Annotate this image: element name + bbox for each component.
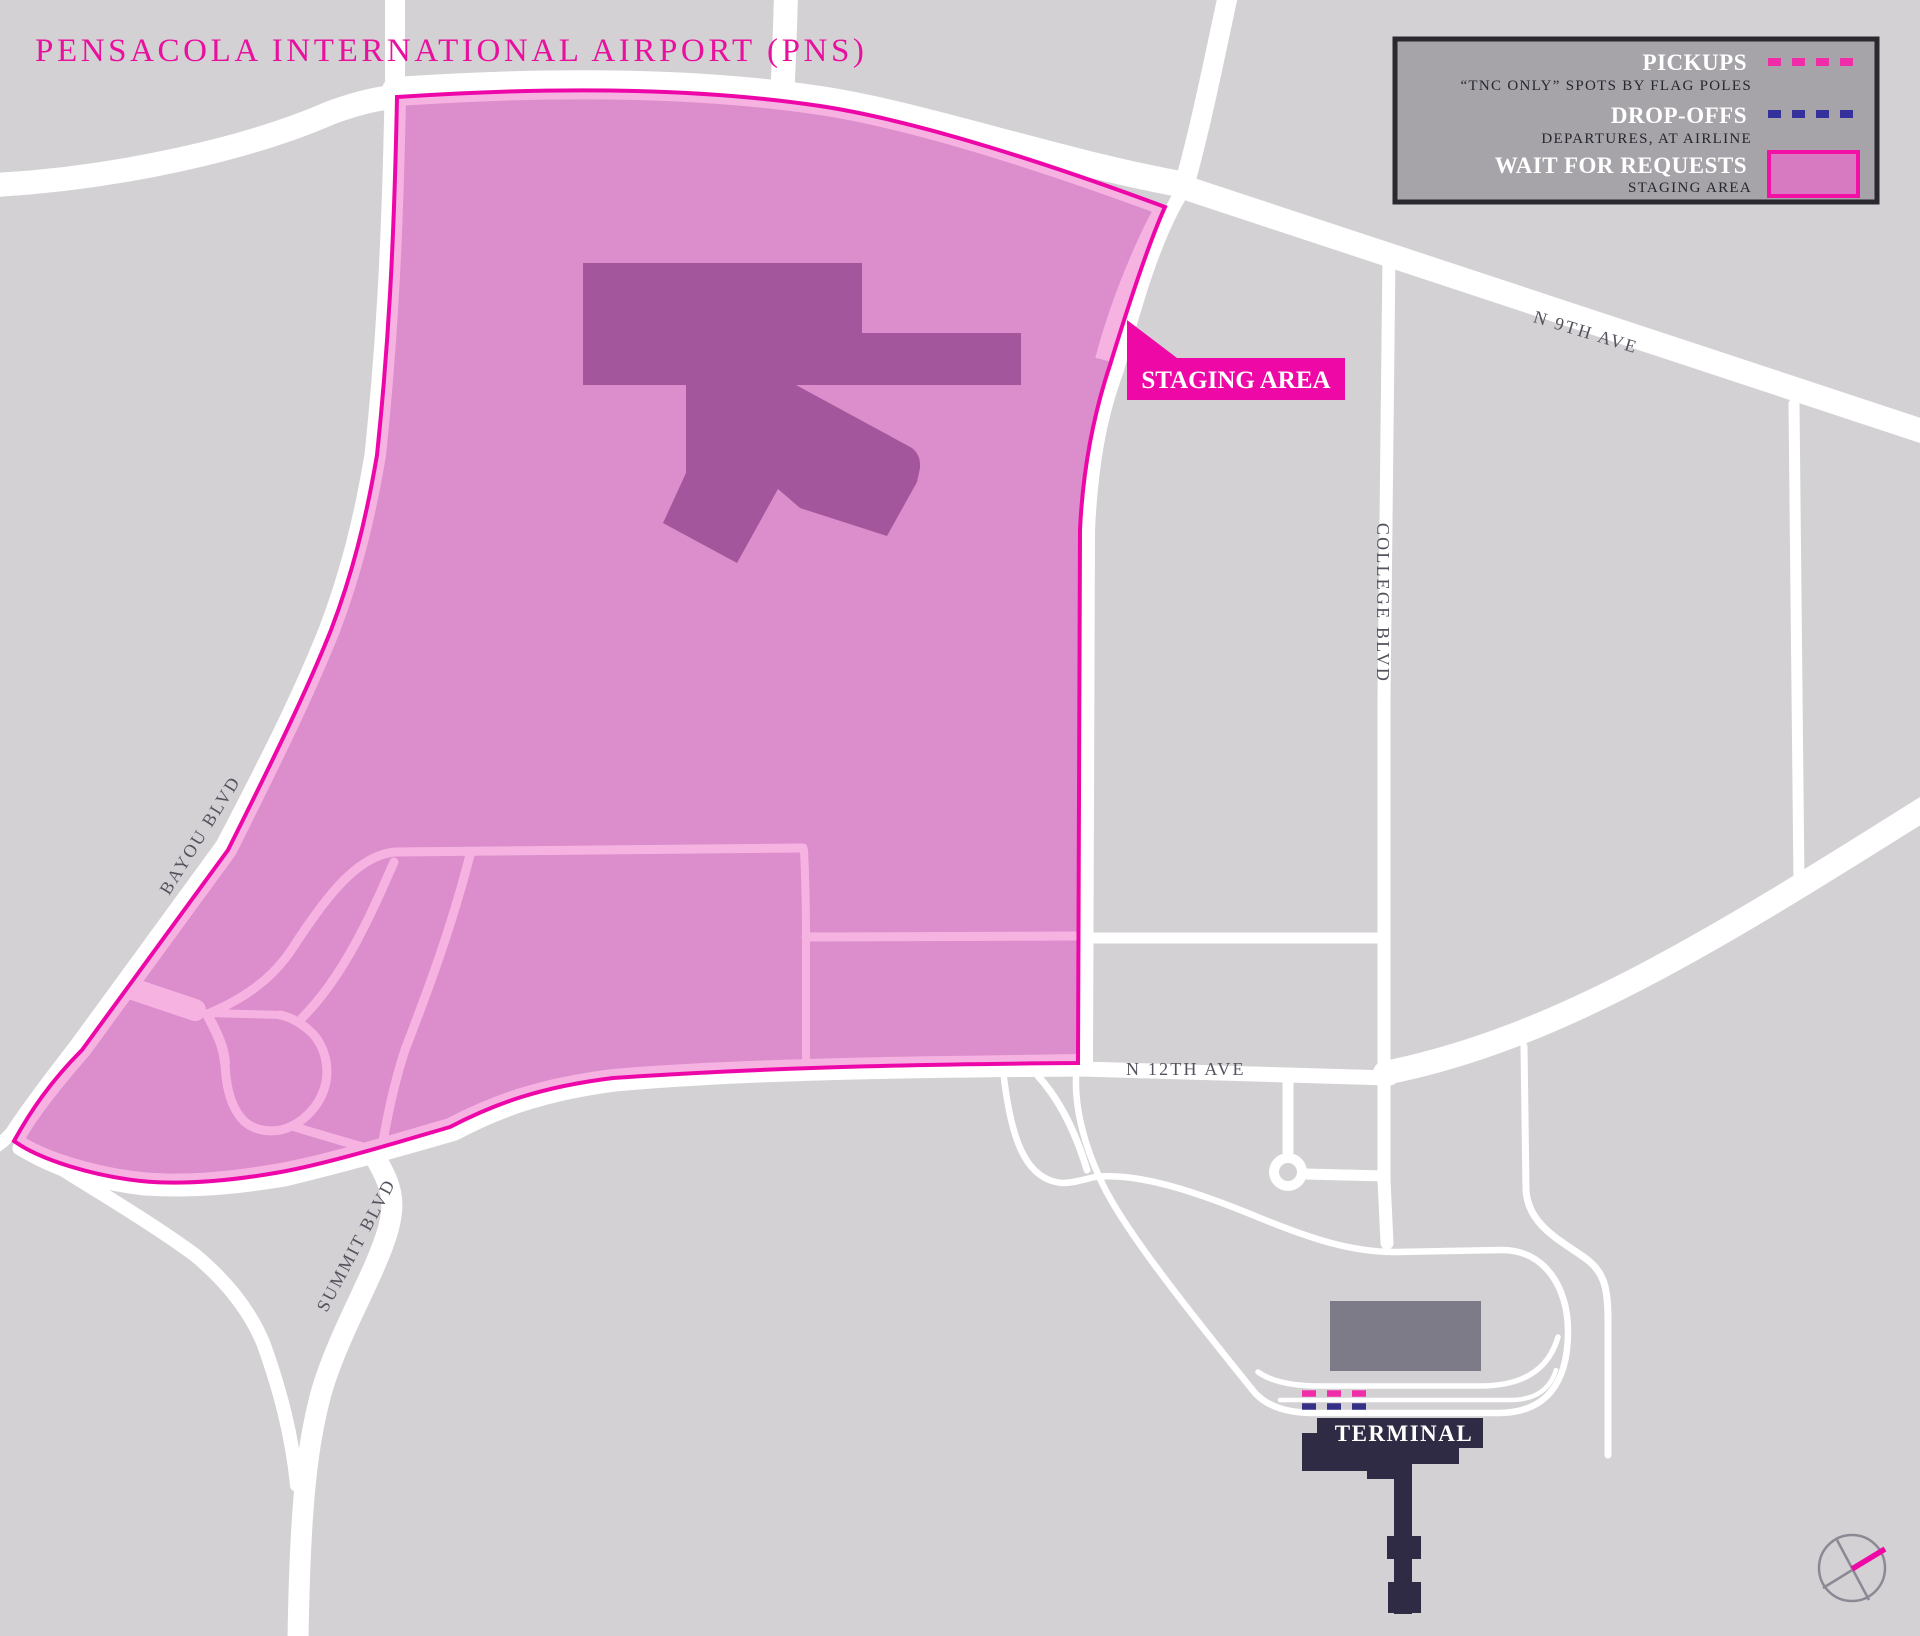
svg-text:“TNC ONLY” SPOTS BY FLAG POLES: “TNC ONLY” SPOTS BY FLAG POLES [1460, 78, 1752, 94]
svg-text:WAIT FOR REQUESTS: WAIT FOR REQUESTS [1495, 153, 1747, 178]
svg-text:DEPARTURES, AT AIRLINE: DEPARTURES, AT AIRLINE [1541, 131, 1752, 147]
svg-text:PENSACOLA INTERNATIONAL AIRPOR: PENSACOLA INTERNATIONAL AIRPORT (PNS) [35, 33, 868, 69]
svg-text:TERMINAL: TERMINAL [1335, 1421, 1474, 1446]
svg-text:PICKUPS: PICKUPS [1643, 50, 1747, 75]
svg-text:STAGING AREA: STAGING AREA [1628, 180, 1752, 196]
svg-text:COLLEGE BLVD: COLLEGE BLVD [1373, 523, 1393, 683]
svg-text:N 12TH AVE: N 12TH AVE [1126, 1059, 1246, 1079]
svg-text:DROP-OFFS: DROP-OFFS [1611, 103, 1747, 128]
svg-text:STAGING AREA: STAGING AREA [1141, 367, 1330, 394]
